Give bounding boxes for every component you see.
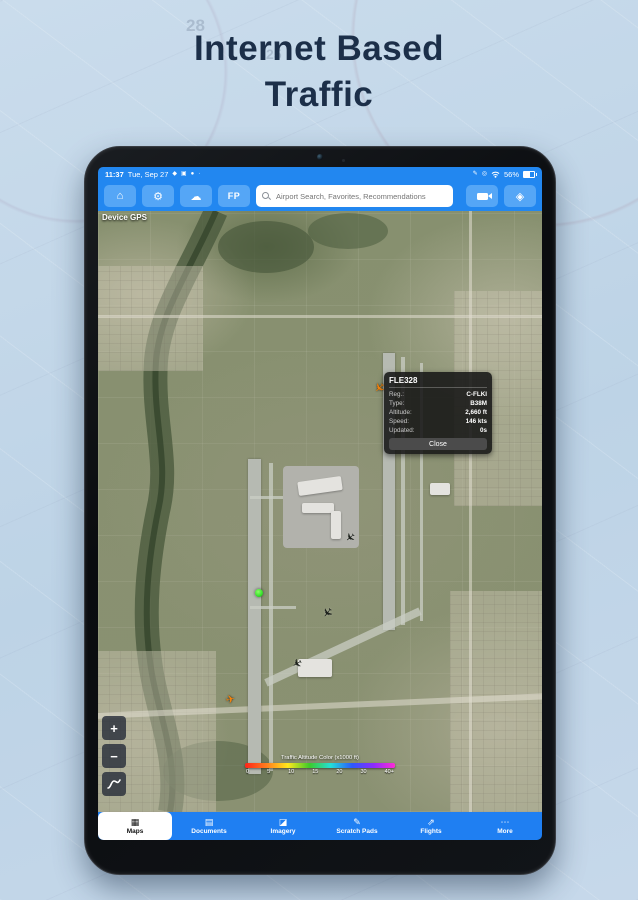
terminal-building-2 xyxy=(302,503,334,513)
popup-row-type: Type: B38M xyxy=(389,399,487,408)
runway-left xyxy=(248,459,261,774)
documents-icon: ▤ xyxy=(205,818,214,827)
plus-icon: + xyxy=(110,721,118,736)
flights-icon: ⇗ xyxy=(427,818,435,827)
tab-scratch-pads[interactable]: ✎ Scratch Pads xyxy=(320,812,394,840)
popup-row-updated: Updated: 0s xyxy=(389,426,487,435)
zoom-out-button[interactable]: − xyxy=(102,744,126,768)
taxiway-connector-2 xyxy=(250,606,296,609)
gear-icon: ⚙ xyxy=(153,190,163,203)
tab-bar: ▦ Maps ▤ Documents ◪ Imagery ✎ Scratch P… xyxy=(98,812,542,840)
downloads-button[interactable]: ☁ xyxy=(180,185,212,207)
map-road-vertical xyxy=(469,211,472,812)
tablet-device: 11:37 Tue, Sep 27 ◆ ▣ ● · ✎ ◎ 56% xyxy=(84,146,556,875)
cloud-icon: ☁ xyxy=(191,190,202,203)
more-icon: ⋯ xyxy=(501,818,510,827)
search-input[interactable] xyxy=(274,191,447,202)
tab-documents[interactable]: ▤ Documents xyxy=(172,812,246,840)
popup-close-button[interactable]: Close xyxy=(389,438,487,450)
popup-row-altitude: Altitude: 2,660 ft xyxy=(389,408,487,417)
tab-more[interactable]: ⋯ More xyxy=(468,812,542,840)
battery-icon xyxy=(523,171,535,178)
traffic-callsign: FLE328 xyxy=(389,376,487,388)
taxiway-left xyxy=(269,463,273,771)
location-button[interactable]: ◈ xyxy=(504,185,536,207)
hangar-1 xyxy=(430,483,450,495)
wifi-icon xyxy=(491,170,500,178)
page-background: 28 25 Internet Based Traffic 11:37 Tue, … xyxy=(0,0,638,900)
stylus-icon: ✎ xyxy=(473,171,478,177)
traffic-green-dot[interactable] xyxy=(255,589,263,597)
sensor-dot-icon xyxy=(342,159,345,162)
status-date: Tue, Sep 27 xyxy=(128,170,169,179)
urban-area-top-left xyxy=(98,266,203,371)
traffic-altitude-legend: Traffic Altitude Color (x1000 ft) 0 5 10… xyxy=(245,755,395,775)
flight-plan-button[interactable]: FP xyxy=(218,185,250,207)
front-camera-icon xyxy=(317,154,323,160)
minus-icon: − xyxy=(110,749,118,764)
home-button[interactable]: ⌂ xyxy=(104,185,136,207)
legend-ticks: 0 5 10 15 20 30 40+ xyxy=(245,769,395,775)
map-road-horizontal xyxy=(98,315,542,318)
imagery-icon: ◪ xyxy=(279,818,288,827)
video-camera-icon xyxy=(477,193,488,200)
traffic-aircraft-icon-4[interactable]: ✈ xyxy=(225,694,236,707)
measure-button[interactable] xyxy=(102,772,126,796)
notification-more-icon: · xyxy=(198,171,200,177)
toolbar: ⌂ ⚙ ☁ FP ◈ xyxy=(98,181,542,211)
altitude-gradient xyxy=(245,763,395,768)
tablet-screen: 11:37 Tue, Sep 27 ◆ ▣ ● · ✎ ◎ 56% xyxy=(98,167,542,840)
scratch-pads-icon: ✎ xyxy=(353,818,361,827)
traffic-popup: FLE328 Reg.: C-FLKI Type: B38M Altitude:… xyxy=(384,372,492,454)
tab-imagery[interactable]: ◪ Imagery xyxy=(246,812,320,840)
home-icon: ⌂ xyxy=(117,190,124,202)
parking-structure xyxy=(298,659,332,677)
camera-button[interactable] xyxy=(466,185,498,207)
ruler-route-icon xyxy=(107,778,121,790)
location-diamond-icon: ◈ xyxy=(516,190,524,203)
legend-title: Traffic Altitude Color (x1000 ft) xyxy=(245,755,395,761)
battery-percent: 56% xyxy=(504,170,519,179)
gps-source-label: Device GPS xyxy=(102,213,147,222)
status-bar: 11:37 Tue, Sep 27 ◆ ▣ ● · ✎ ◎ 56% xyxy=(98,167,542,181)
maps-icon: ▦ xyxy=(131,818,140,827)
zoom-in-button[interactable]: + xyxy=(102,716,126,740)
tab-flights[interactable]: ⇗ Flights xyxy=(394,812,468,840)
tab-maps[interactable]: ▦ Maps xyxy=(98,812,172,840)
page-title-line1: Internet Based xyxy=(194,29,444,68)
status-time: 11:37 xyxy=(105,170,124,179)
page-title-line2: Traffic xyxy=(265,75,374,114)
search-icon xyxy=(262,192,270,200)
notification-icon-1: ◆ xyxy=(172,171,177,177)
notification-icon-2: ▣ xyxy=(181,171,187,177)
settings-button[interactable]: ⚙ xyxy=(142,185,174,207)
gps-status-icon: ◎ xyxy=(482,171,487,177)
notification-icon-3: ● xyxy=(191,171,195,177)
page-title: Internet Based Traffic xyxy=(0,26,638,117)
search-box[interactable] xyxy=(256,185,453,207)
map-controls: + − xyxy=(102,716,126,796)
terminal-pier xyxy=(331,511,341,539)
popup-row-speed: Speed: 146 kts xyxy=(389,417,487,426)
popup-row-reg: Reg.: C-FLKI xyxy=(389,390,487,399)
map-canvas[interactable]: Device GPS ✈ ✈ ✈ ✈ ✈ FLE328 Reg.: C-FLKI… xyxy=(98,211,542,812)
